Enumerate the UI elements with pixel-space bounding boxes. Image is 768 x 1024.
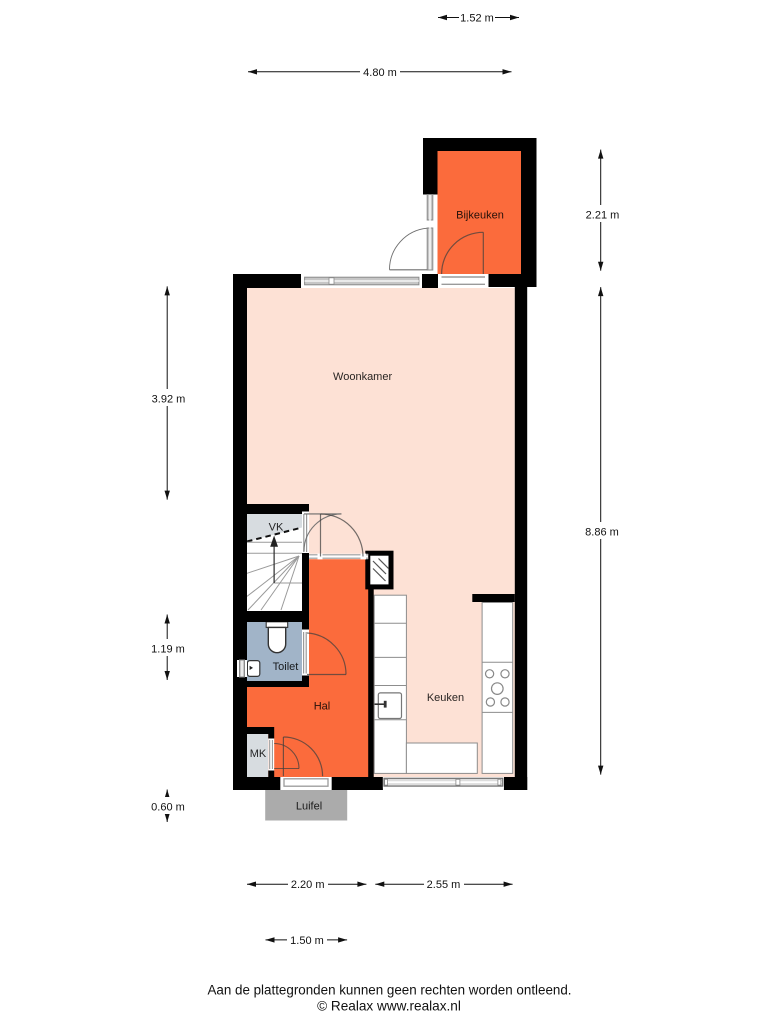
svg-text:4.80 m: 4.80 m [363,67,397,79]
svg-text:MK: MK [250,748,267,760]
svg-text:2.55 m: 2.55 m [427,879,461,891]
svg-text:8.86 m: 8.86 m [585,527,619,539]
svg-text:Keuken: Keuken [427,692,464,704]
svg-text:Bijkeuken: Bijkeuken [456,210,504,222]
svg-text:2.20 m: 2.20 m [291,879,325,891]
svg-text:Luifel: Luifel [296,801,322,813]
svg-text:Hal: Hal [314,701,331,713]
svg-text:3.92 m: 3.92 m [152,394,186,406]
svg-text:Woonkamer: Woonkamer [333,371,392,383]
svg-text:0.60 m: 0.60 m [151,802,185,814]
svg-text:1.52 m: 1.52 m [460,13,494,25]
svg-text:VK: VK [269,522,284,534]
svg-text:1.19 m: 1.19 m [151,644,185,656]
svg-text:Toilet: Toilet [273,661,299,673]
svg-text:1.50 m: 1.50 m [290,935,324,947]
svg-text:© Realax www.realax.nl: © Realax www.realax.nl [317,999,461,1014]
svg-text:Aan de plattegronden kunnen ge: Aan de plattegronden kunnen geen rechten… [207,983,571,998]
svg-text:2.21 m: 2.21 m [586,210,620,222]
